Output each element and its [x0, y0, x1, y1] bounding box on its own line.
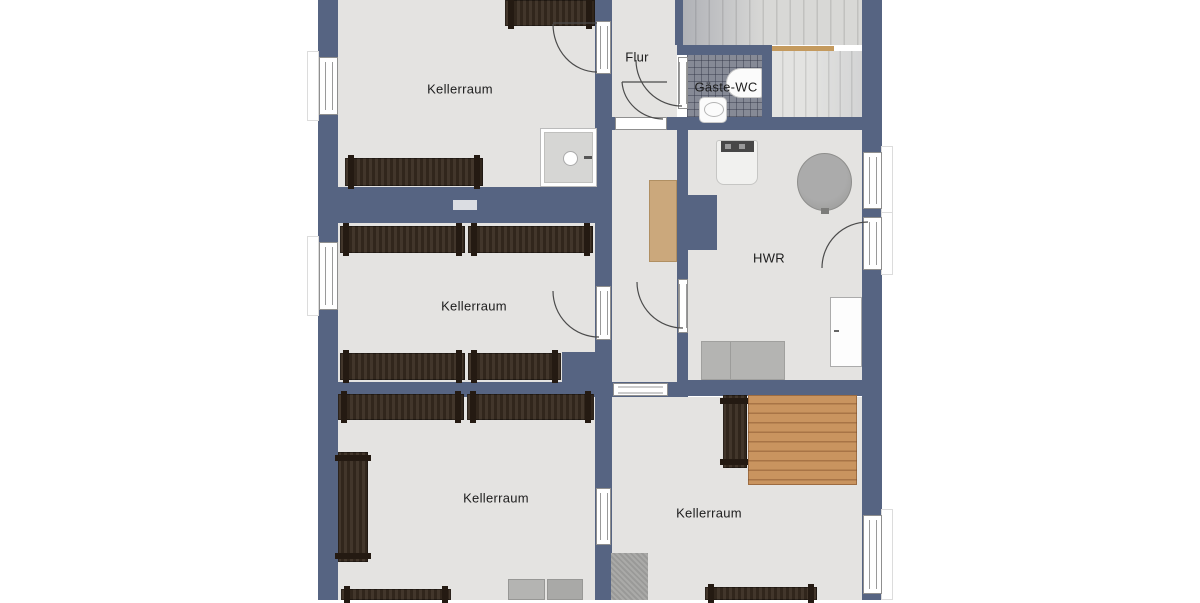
stairs-left-wall — [675, 0, 683, 45]
shelf — [338, 394, 464, 420]
room-label-kellerraum-2: Kellerraum — [441, 299, 507, 314]
door-sill — [881, 212, 893, 275]
shelf — [723, 395, 747, 468]
shelf — [338, 452, 368, 562]
window-room1-left — [319, 57, 338, 115]
staircase-lower-flight — [772, 51, 862, 117]
door-frame-room1 — [596, 21, 611, 74]
door-frame-exterior-hwr — [863, 217, 882, 270]
tank-valve — [821, 208, 829, 214]
window-hallway-bottom — [613, 383, 668, 396]
boiler-knob — [739, 144, 745, 149]
washing-machine — [508, 579, 545, 600]
shelf — [468, 226, 593, 253]
shelf — [468, 353, 561, 380]
shelf — [340, 226, 465, 253]
hwr-chimney-stub — [688, 195, 717, 250]
shelf — [341, 589, 451, 600]
shelf — [505, 0, 595, 26]
window-room4-right — [863, 515, 882, 594]
concrete-pad — [611, 553, 648, 600]
room-label-gaeste-wc: Gäste-WC — [694, 80, 757, 95]
wall-niche — [453, 200, 477, 210]
window-room2-left — [319, 242, 338, 310]
room2-corner-pillar — [562, 352, 595, 383]
room-label-hwr: HWR — [753, 251, 785, 266]
staircase-upper-flight — [683, 0, 862, 45]
shower-head-icon — [584, 156, 592, 159]
boiler-knob — [725, 144, 731, 149]
shelf — [340, 353, 465, 380]
hallway-right-wall — [677, 130, 688, 397]
cabinet — [649, 180, 677, 262]
window-sill — [307, 236, 319, 316]
window-sill — [307, 51, 319, 121]
washing-machine — [701, 341, 785, 380]
shelf — [705, 587, 817, 600]
window-sill — [881, 146, 893, 215]
room-label-flur: Flur — [625, 50, 649, 65]
stair-handrail — [772, 46, 834, 51]
door-frame-room2 — [596, 286, 611, 340]
room-label-kellerraum-4: Kellerraum — [676, 506, 742, 521]
room-label-kellerraum-1: Kellerraum — [427, 82, 493, 97]
boiler — [716, 140, 758, 185]
sink — [699, 97, 727, 123]
floor-plan: Kellerraum Kellerraum Kellerraum Kellerr… — [0, 0, 1200, 600]
opening-room3-room4 — [596, 488, 611, 545]
door-frame-hwr — [678, 279, 688, 333]
appliance-divider — [730, 342, 731, 379]
sink-basin — [704, 102, 724, 117]
panel-latch — [834, 330, 839, 332]
storage-tank — [797, 153, 852, 211]
shower — [540, 128, 597, 187]
window-sill — [881, 509, 893, 600]
window-hwr-right — [863, 152, 882, 209]
room-label-kellerraum-3: Kellerraum — [463, 491, 529, 506]
boiler-control-panel — [721, 141, 754, 152]
door-frame-wc — [678, 57, 688, 109]
washing-machine — [547, 579, 583, 600]
shower-drain — [563, 151, 578, 166]
door-frame-hall-stairs — [615, 117, 667, 130]
exterior-wall-right — [862, 0, 882, 600]
shelf — [345, 158, 483, 186]
electrical-panel — [830, 297, 862, 367]
wc-right-wall — [762, 45, 772, 117]
wc-top-wall — [677, 45, 772, 55]
shelf — [467, 394, 594, 420]
hwr-bottom-wall — [677, 380, 882, 396]
wood-platform — [748, 395, 857, 485]
